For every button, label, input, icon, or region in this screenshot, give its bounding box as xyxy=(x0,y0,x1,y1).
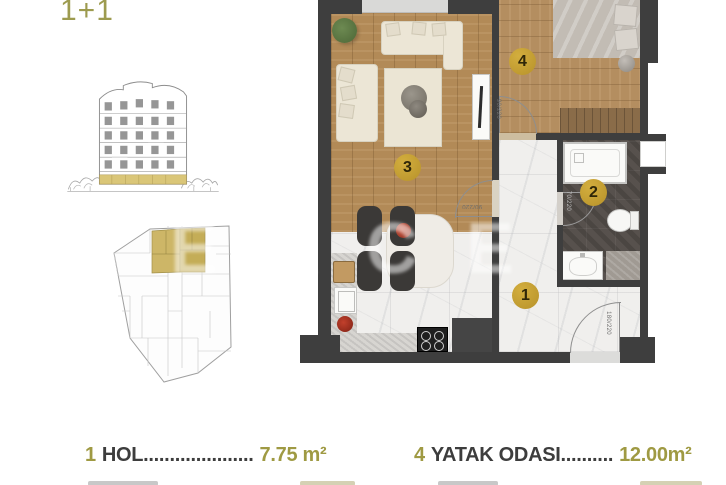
burner xyxy=(421,331,431,341)
room-badge-hall: 1 xyxy=(512,282,539,309)
stove xyxy=(417,327,448,352)
legend-name: YATAK ODASI xyxy=(431,444,561,466)
kitchen-dark-cabinet xyxy=(452,318,492,352)
legend-area: 7.75 m² xyxy=(260,444,327,466)
shower-drain xyxy=(574,153,584,163)
table-flowers xyxy=(396,223,411,238)
bed-pillow xyxy=(614,28,639,51)
dining-chair xyxy=(390,251,415,291)
bathroom-gray-patch xyxy=(606,251,640,282)
living-door-label: 90/220 xyxy=(462,203,482,209)
living-door-threshold xyxy=(492,180,499,217)
sofa-pillow xyxy=(340,85,357,101)
burner xyxy=(434,341,444,351)
sink-basin xyxy=(569,257,597,276)
legend: 1HOL.....................7.75 m² 4YATAK … xyxy=(0,444,726,474)
legend-cropped-row xyxy=(640,481,702,485)
legend-number: 4 xyxy=(414,444,425,466)
wall xyxy=(300,335,340,363)
toilet-tank xyxy=(630,211,639,230)
legend-cropped-row xyxy=(438,481,498,485)
bathroom-sink xyxy=(560,251,603,280)
legend-cropped-row xyxy=(300,481,355,485)
legend-cropped-row xyxy=(88,481,158,485)
legend-dots: ..................... xyxy=(143,444,253,466)
living-window xyxy=(362,0,448,13)
wardrobe xyxy=(560,108,640,133)
wall xyxy=(536,133,648,140)
key-plan xyxy=(92,216,244,384)
bedside-lamp xyxy=(618,55,635,72)
bed-pillow xyxy=(613,4,638,27)
cutting-board xyxy=(333,261,355,283)
room-badge-bedroom: 4 xyxy=(509,48,536,75)
living-door-leaf xyxy=(455,216,492,217)
table-decor xyxy=(409,100,427,118)
entrance-door-leaf xyxy=(619,302,620,352)
bath-door-label: 70/220 xyxy=(565,191,571,211)
key-plan-drawing xyxy=(92,216,244,384)
sofa-pillow xyxy=(338,103,355,119)
wall xyxy=(640,174,648,287)
bedroom-door-label: 90/220 xyxy=(495,99,501,119)
sofa-pillow xyxy=(385,22,401,37)
burner xyxy=(421,341,431,351)
shower-tray xyxy=(563,142,627,184)
plant xyxy=(332,18,357,43)
legend-dots: .......... xyxy=(561,444,614,466)
sink-faucet xyxy=(580,253,585,257)
kitchen-counter-bottom xyxy=(331,333,417,352)
bathroom-window-niche xyxy=(640,141,666,167)
sofa-pillow xyxy=(411,21,426,35)
dining-chair xyxy=(357,206,382,246)
wall xyxy=(640,167,666,174)
kitchen-sink-basin xyxy=(338,291,355,312)
legend-item-hall: 1HOL.....................7.75 m² xyxy=(85,444,326,467)
entrance-door-label: 180/220 xyxy=(605,311,611,335)
legend-name: HOL xyxy=(102,444,143,466)
plan-type-title: 1+1 xyxy=(60,0,114,28)
sofa-pillow xyxy=(431,22,446,36)
wall xyxy=(492,0,499,180)
wall xyxy=(557,140,563,192)
wall xyxy=(620,337,655,363)
burner xyxy=(434,331,444,341)
bedroom-door-threshold xyxy=(499,133,536,140)
wall xyxy=(557,280,648,287)
dining-chair xyxy=(357,251,382,291)
floorplan-page: 1+1 xyxy=(0,0,726,485)
wall xyxy=(492,217,499,352)
room-badge-bathroom: 2 xyxy=(580,179,607,206)
legend-item-bedroom: 4YATAK ODASI..........12.00m² xyxy=(414,444,692,467)
wall xyxy=(647,0,658,63)
cook-pot xyxy=(337,316,353,332)
room-badge-living: 3 xyxy=(394,154,421,181)
floor-plan: 90/220 90/220 70/220 180/220 1 2 3 4 xyxy=(300,0,668,368)
building-sketch xyxy=(64,68,222,208)
legend-number: 1 xyxy=(85,444,96,466)
building-sketch-drawing xyxy=(64,68,222,208)
wall xyxy=(318,8,331,353)
wall xyxy=(640,134,666,141)
entrance-threshold xyxy=(570,352,620,363)
legend-area: 12.00m² xyxy=(619,444,691,466)
wall xyxy=(557,225,563,280)
